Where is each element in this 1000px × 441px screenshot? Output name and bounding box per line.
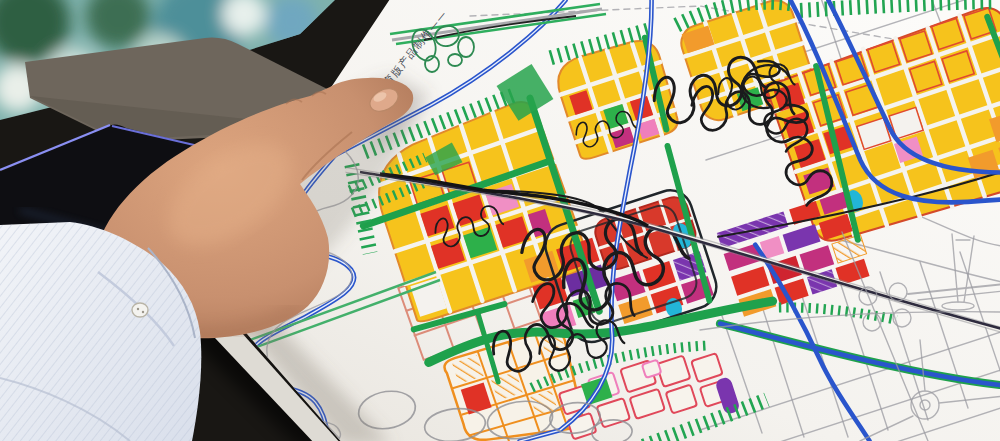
- scene-canvas: desk 教育版产品制作——: [0, 0, 1000, 441]
- cuff-button: [132, 303, 148, 317]
- photo-scene: desk 教育版产品制作——: [0, 0, 1000, 441]
